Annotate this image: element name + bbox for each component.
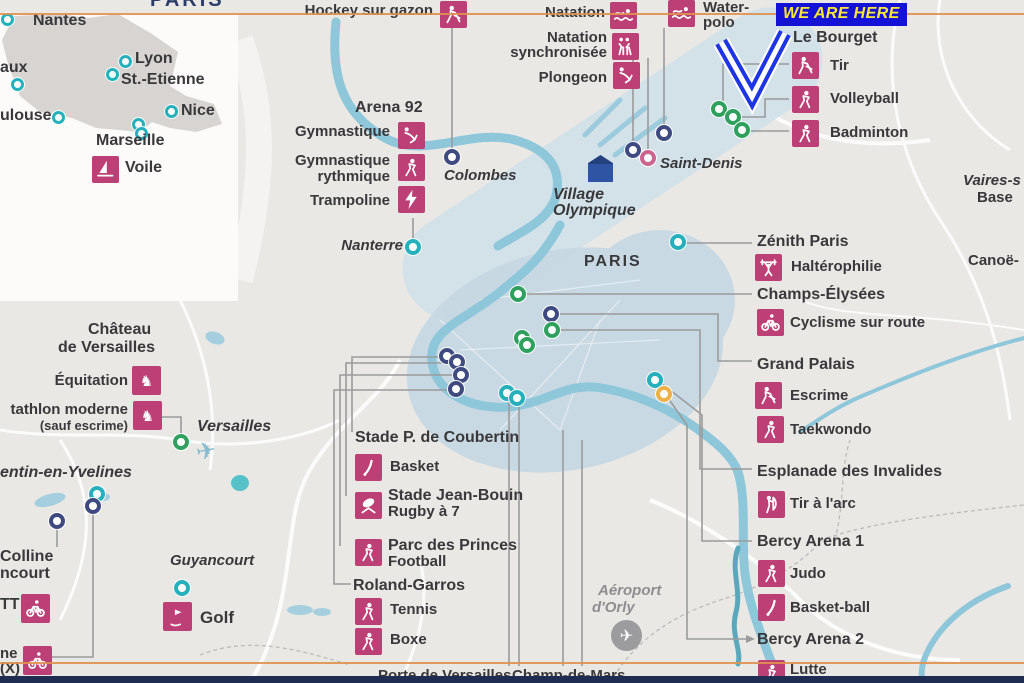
yvelines-label-fragment: entin-en-Yvelines [0, 465, 132, 482]
bottom-orange-line [0, 662, 1024, 664]
venue-marker [174, 580, 190, 596]
roland-garros-label: Roland-Garros [353, 578, 465, 595]
venue-marker [656, 125, 672, 141]
plongeon-icon [613, 62, 640, 89]
escrime-icon [755, 382, 782, 409]
tir-arc-label: Tir à l'arc [790, 496, 856, 512]
boxe-icon [355, 628, 382, 655]
natation-sync-label-2: synchronisée [510, 45, 607, 61]
pentathlon-icon: ♞ [133, 401, 162, 430]
arena92-label: Arena 92 [355, 100, 423, 117]
halterophilie-label: Haltérophilie [791, 259, 882, 275]
football-icon [355, 539, 382, 566]
venue-marker [670, 234, 686, 250]
judo-icon [758, 560, 785, 587]
venue-marker [173, 434, 189, 450]
gymnastique-label: Gymnastique [295, 124, 390, 140]
volleyball-label: Volleyball [830, 91, 899, 107]
saint-denis-label: Saint-Denis [660, 156, 743, 172]
halterophilie-icon [755, 254, 782, 281]
bmx-icon [23, 646, 52, 675]
champs-elysees-label: Champs-Élysées [757, 287, 885, 304]
cyclisme-route-label: Cyclisme sur route [790, 315, 925, 331]
rugby-icon [355, 492, 382, 519]
we-are-here-banner: WE ARE HERE [776, 3, 907, 26]
vtt-label-fragment: TT [0, 597, 20, 614]
golf-icon [163, 602, 192, 631]
voile-icon [92, 156, 119, 183]
badminton-label: Badminton [830, 125, 908, 141]
city-label-nice: Nice [181, 103, 215, 120]
basket-icon [355, 454, 382, 481]
hockey-label: Hockey sur gazon [305, 3, 433, 19]
village-olympique-label-2: Olympique [553, 203, 636, 220]
olympic-venues-map: PARIS Nantes aux Lyon St.-Etienne Nice u… [0, 0, 1024, 683]
venue-marker [444, 149, 460, 165]
vtt-icon [21, 594, 50, 623]
invalides-label: Esplanade des Invalides [757, 464, 942, 481]
pentathlon-sub-label: (sauf escrime) [40, 419, 128, 433]
basket-label: Basket [390, 459, 439, 475]
tir-arc-icon [758, 491, 785, 518]
base-label-fragment: Base [977, 190, 1013, 206]
city-label-bordeaux-fragment: aux [0, 60, 28, 77]
trampoline-label: Trampoline [310, 193, 390, 209]
bottom-bar [0, 676, 1024, 683]
escrime-label: Escrime [790, 388, 848, 404]
venue-marker [656, 386, 672, 402]
city-label-lyon: Lyon [135, 51, 173, 68]
venue-marker [509, 390, 525, 406]
basketball-icon [758, 594, 785, 621]
grand-palais-label: Grand Palais [757, 357, 855, 374]
bercy2-label: Bercy Arena 2 [757, 632, 864, 649]
plane-glyph: ✈ [620, 626, 633, 646]
svg-text:♞: ♞ [141, 407, 154, 425]
venue-marker [510, 286, 526, 302]
venue-marker [625, 142, 641, 158]
zenith-label: Zénith Paris [757, 234, 849, 251]
gymnastique-icon [398, 122, 425, 149]
orly-airport-icon: ✈ [611, 620, 642, 651]
tennis-label: Tennis [390, 602, 437, 618]
equitation-label: Équitation [55, 373, 128, 389]
chateau-label-1: Château [88, 322, 151, 339]
canoe-label-fragment: Canoë- [968, 253, 1019, 269]
trampoline-icon [398, 186, 425, 213]
inset-title-fragment: PARIS [150, 0, 225, 12]
voile-label: Voile [125, 160, 162, 177]
city-marker-lyon [119, 55, 132, 68]
venue-marker [405, 239, 421, 255]
natation-icon [610, 2, 637, 29]
city-label-nantes: Nantes [33, 13, 86, 30]
venue-marker [448, 381, 464, 397]
chateau-label-2: de Versailles [58, 340, 155, 357]
venue-marker [519, 337, 535, 353]
venue-marker [543, 306, 559, 322]
boxe-label: Boxe [390, 632, 427, 648]
tennis-icon [355, 598, 382, 625]
city-marker-st-etienne [106, 68, 119, 81]
venue-marker [85, 498, 101, 514]
judo-label: Judo [790, 566, 826, 582]
venue-marker [544, 322, 560, 338]
coubertin-label: Stade P. de Coubertin [355, 430, 519, 447]
gym-rythmique-label-1: Gymnastique [295, 153, 390, 169]
volleyball-icon [792, 86, 819, 113]
equitation-icon: ♞ [132, 366, 161, 395]
bercy1-label: Bercy Arena 1 [757, 534, 864, 551]
guyancourt-label: Guyancourt [170, 553, 254, 569]
city-marker-toulouse [52, 111, 65, 124]
tir-label: Tir [830, 58, 849, 74]
city-marker-bordeaux [11, 78, 24, 91]
svg-text:♞: ♞ [140, 372, 153, 390]
colline-label-2: ncourt [0, 566, 50, 583]
city-label-st-etienne: St.-Etienne [121, 72, 205, 89]
tir-icon [792, 52, 819, 79]
aeroport-orly-label-1: Aéroport [598, 583, 661, 599]
football-label: Football [388, 554, 446, 570]
versailles-label: Versailles [197, 419, 271, 436]
gym-rythmique-icon [398, 154, 425, 181]
plongeon-label: Plongeon [539, 70, 607, 86]
city-label-marseille: Marseille [96, 133, 164, 150]
natation-sync-icon [612, 33, 639, 60]
cyclisme-route-icon [757, 309, 784, 336]
aeroport-orly-label-2: d'Orly [592, 600, 635, 616]
nanterre-label: Nanterre [341, 238, 403, 254]
basketball-label: Basket-ball [790, 600, 870, 616]
venue-marker [640, 150, 656, 166]
water-polo-label-2: polo [703, 15, 735, 31]
vaires-label-fragment: Vaires-s [963, 173, 1021, 189]
pentathlon-label-fragment: tathlon moderne [10, 402, 128, 418]
taekwondo-label: Taekwondo [790, 422, 871, 438]
gym-rythmique-label-2: rythmique [317, 169, 390, 185]
city-marker-nice [165, 105, 178, 118]
taekwondo-icon [757, 416, 784, 443]
city-label-toulouse-fragment: ulouse [0, 108, 52, 125]
venue-marker [49, 513, 65, 529]
golf-label: Golf [200, 609, 234, 627]
colline-label-1: Colline [0, 549, 53, 566]
colombes-label: Colombes [444, 168, 517, 184]
rugby7-label: Rugby à 7 [388, 504, 460, 520]
le-bourget-label: Le Bourget [793, 30, 877, 47]
paris-label: PARIS [584, 254, 642, 271]
badminton-icon [792, 120, 819, 147]
venue-marker [734, 122, 750, 138]
